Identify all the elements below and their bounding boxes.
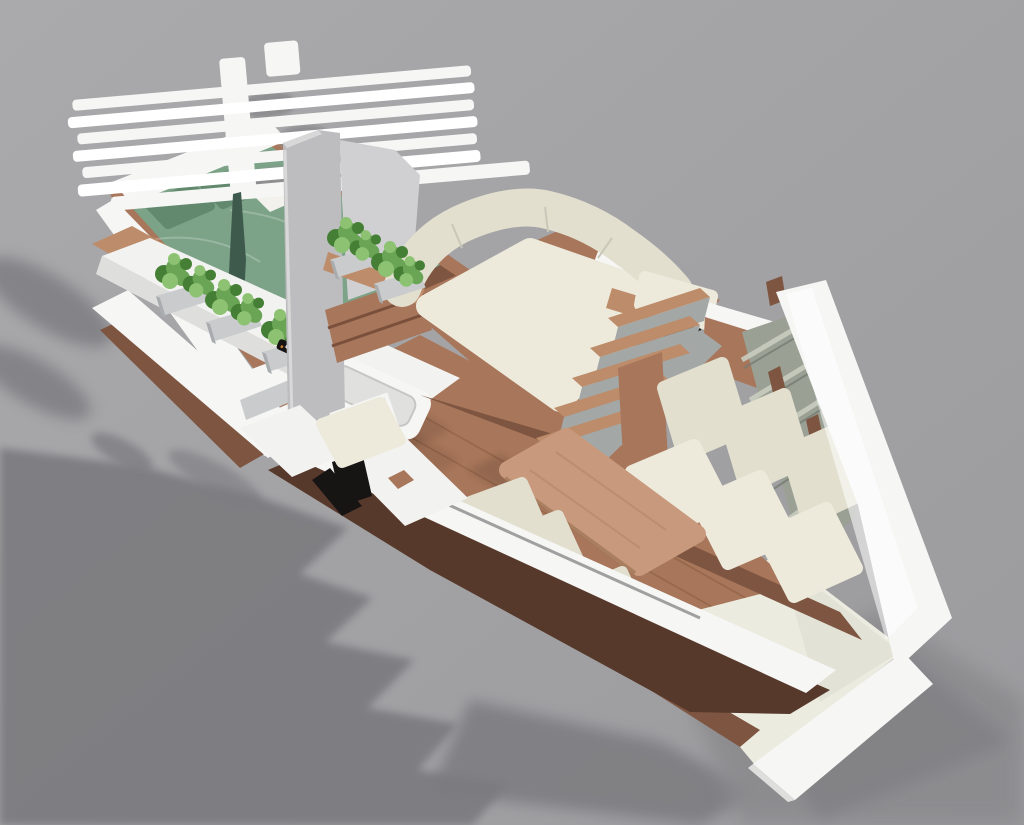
scene-render: [0, 0, 1024, 825]
hatch-top-tab: [264, 40, 301, 77]
render-stage: [0, 0, 1024, 825]
